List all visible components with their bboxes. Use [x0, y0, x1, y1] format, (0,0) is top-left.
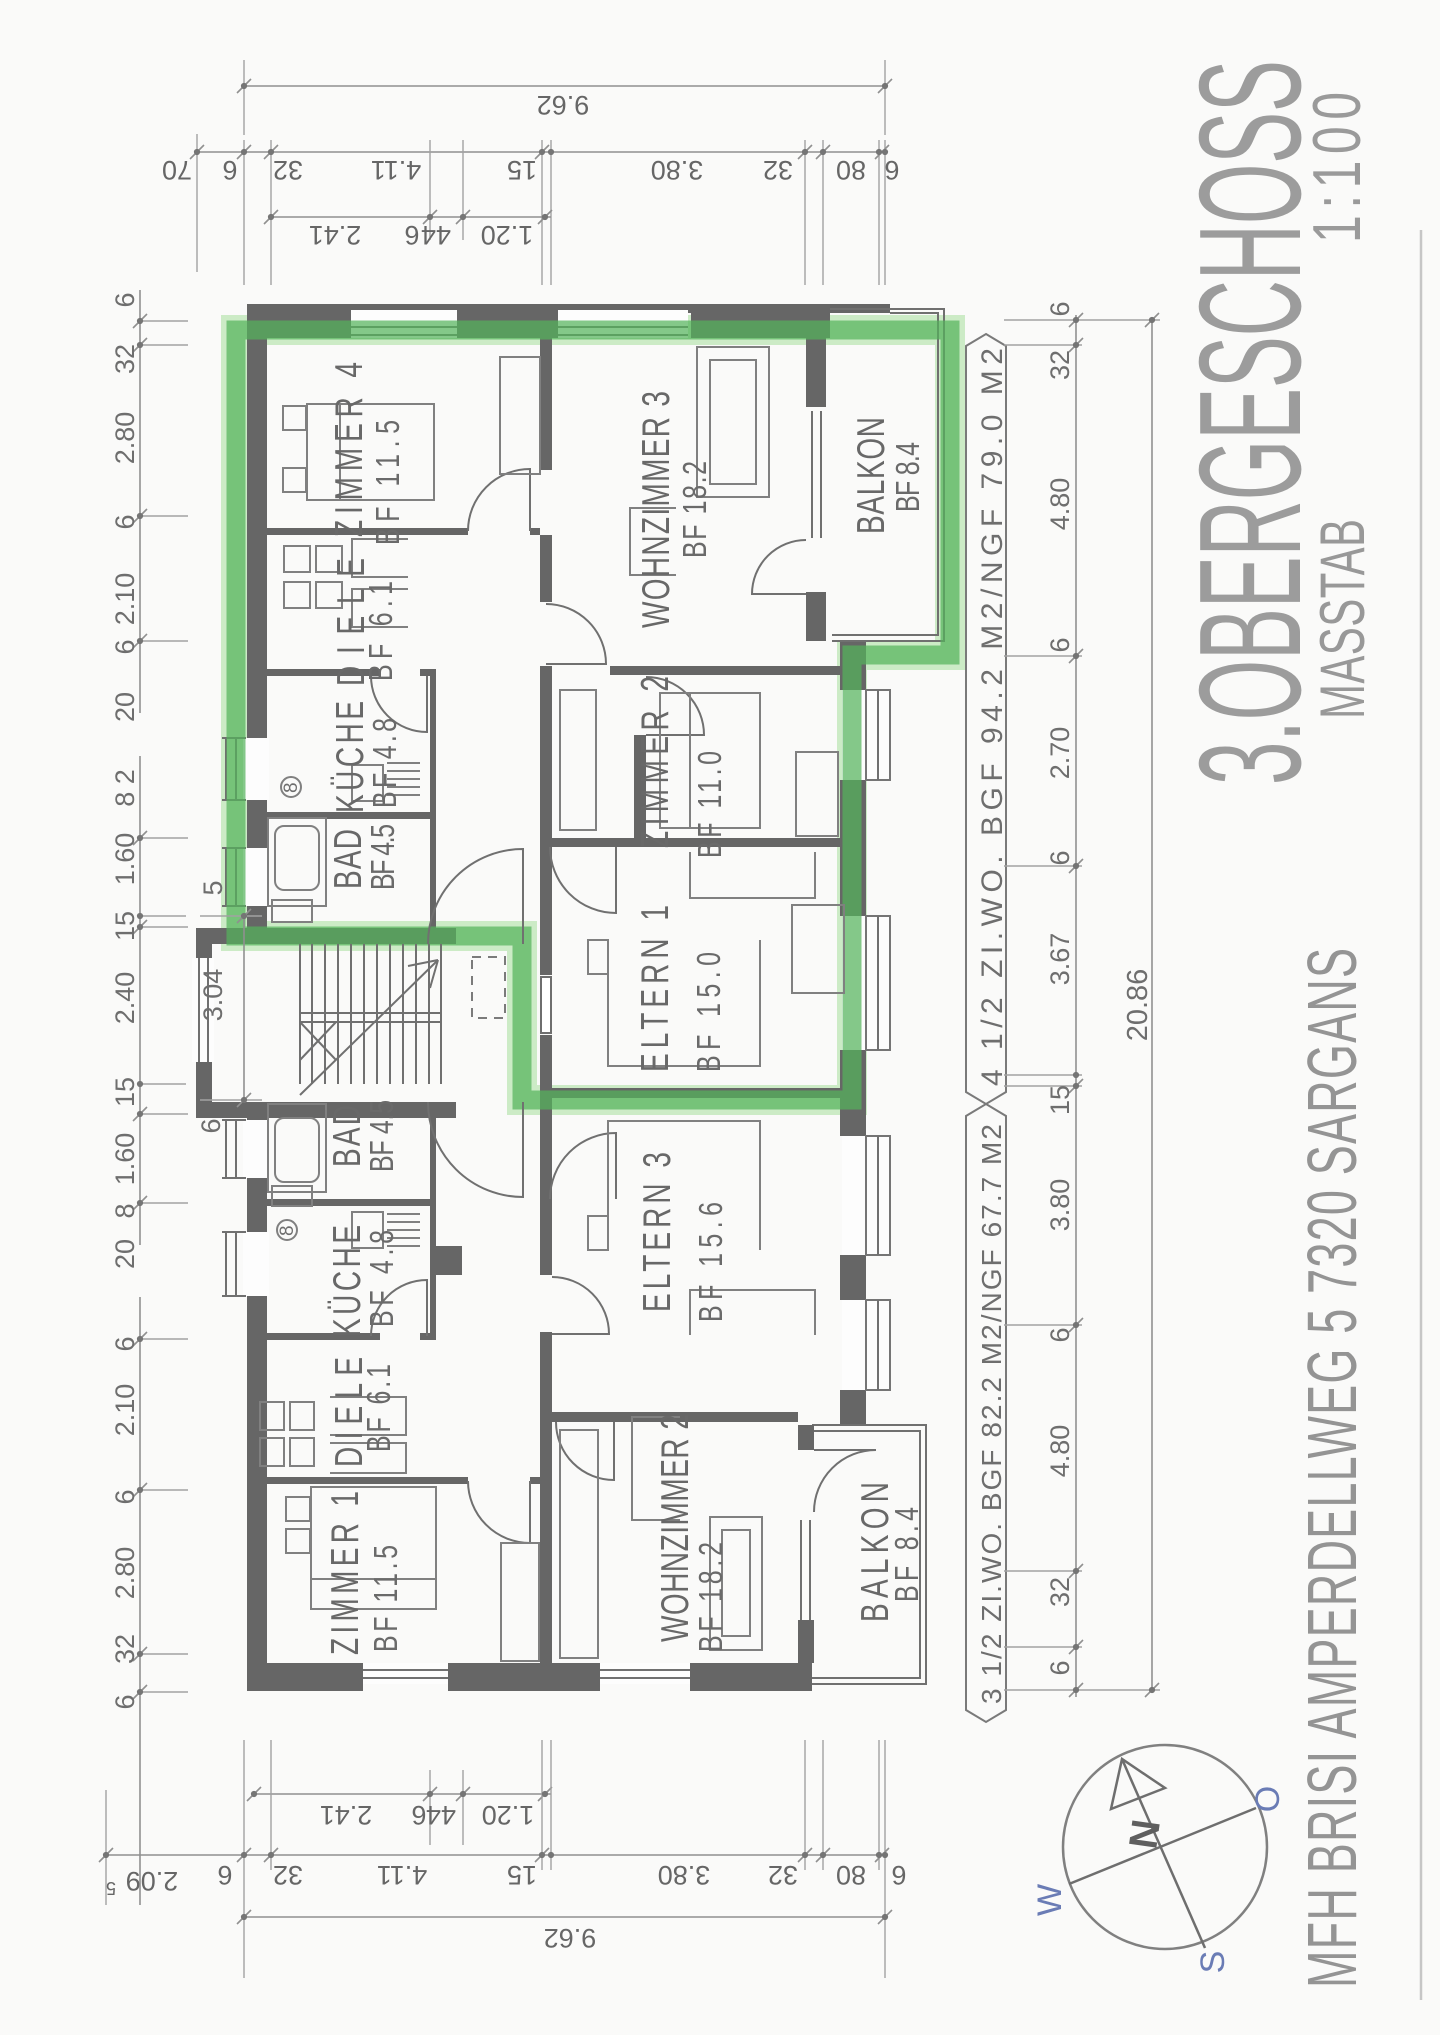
- svg-text:6: 6: [110, 639, 140, 654]
- svg-text:ZIMMER 1: ZIMMER 1: [323, 1491, 367, 1655]
- svg-text:4.11: 4.11: [371, 155, 422, 185]
- svg-text:70: 70: [162, 155, 192, 185]
- svg-text:2.80: 2.80: [110, 412, 140, 465]
- svg-text:2.09: 2.09: [126, 1866, 179, 1896]
- svg-text:44: 44: [426, 1800, 456, 1830]
- svg-text:6: 6: [1045, 1660, 1075, 1675]
- svg-text:6: 6: [1045, 301, 1075, 316]
- svg-text:5: 5: [106, 1878, 116, 1898]
- svg-text:4 1/2 ZI.WO. BGF 94.2 M2/NGF 7: 4 1/2 ZI.WO. BGF 94.2 M2/NGF 79.0 M2: [976, 348, 1009, 1086]
- svg-text:BF 4.5: BF 4.5: [363, 1100, 401, 1172]
- svg-text:6: 6: [217, 1860, 232, 1890]
- svg-text:3.80: 3.80: [651, 155, 704, 185]
- svg-text:80: 80: [836, 155, 866, 185]
- svg-text:15: 15: [110, 1077, 140, 1107]
- svg-text:3 1/2 ZI.WO. BGF 82.2 M2/NGF 6: 3 1/2 ZI.WO. BGF 82.2 M2/NGF 67.7 M2: [976, 1124, 1007, 1704]
- svg-text:BF 6.1: BF 6.1: [360, 1364, 398, 1452]
- svg-text:6: 6: [196, 1118, 226, 1133]
- svg-text:44: 44: [421, 220, 451, 250]
- svg-text:32: 32: [763, 155, 793, 185]
- svg-text:6: 6: [110, 292, 140, 307]
- svg-text:4.80: 4.80: [1045, 1425, 1075, 1478]
- svg-text:6: 6: [222, 155, 237, 185]
- svg-text:8: 8: [277, 1225, 298, 1236]
- svg-text:32: 32: [110, 1634, 140, 1664]
- svg-text:WOHNZIMMER 2: WOHNZIMMER 2: [653, 1414, 697, 1642]
- svg-text:6: 6: [1045, 850, 1075, 865]
- svg-text:4.11: 4.11: [377, 1860, 428, 1890]
- svg-text:ELTERN 1: ELTERN 1: [633, 905, 677, 1072]
- svg-text:BF 8.4: BF 8.4: [889, 442, 927, 512]
- svg-text:32: 32: [1045, 350, 1075, 380]
- svg-text:BF 4.5: BF 4.5: [364, 824, 402, 890]
- svg-text:ZIMMER 4: ZIMMER 4: [327, 362, 371, 537]
- svg-text:9.62: 9.62: [544, 1923, 597, 1953]
- svg-text:2.70: 2.70: [1045, 727, 1075, 780]
- svg-text:BALKON: BALKON: [849, 417, 893, 534]
- svg-text:ZIMMER 2: ZIMMER 2: [633, 676, 677, 848]
- svg-text:32: 32: [273, 1860, 303, 1890]
- svg-text:W: W: [1031, 1884, 1069, 1916]
- svg-text:15: 15: [1045, 1085, 1075, 1115]
- svg-text:6: 6: [411, 1800, 426, 1830]
- svg-text:6: 6: [1045, 1327, 1075, 1342]
- svg-text:4.80: 4.80: [1045, 478, 1075, 531]
- svg-text:MASSTAB: MASSTAB: [1309, 519, 1378, 719]
- svg-text:MFH BRISI AMPERDELLWEG 5 732: MFH BRISI AMPERDELLWEG 5 7320 SARGANS: [1294, 948, 1371, 1988]
- svg-text:2.10: 2.10: [110, 1384, 140, 1437]
- svg-text:8: 8: [110, 1203, 140, 1218]
- svg-text:N: N: [1121, 1817, 1169, 1852]
- svg-text:20.86: 20.86: [1122, 969, 1154, 1042]
- svg-text:8: 8: [281, 782, 302, 793]
- svg-text:1:100: 1:100: [1299, 92, 1375, 243]
- svg-text:ELTERN 3: ELTERN 3: [635, 1152, 679, 1312]
- svg-text:32: 32: [1045, 1577, 1075, 1607]
- svg-text:6: 6: [110, 1694, 140, 1709]
- svg-text:WOHNZIMMER 3: WOHNZIMMER 3: [634, 391, 678, 628]
- svg-text:6: 6: [891, 1860, 906, 1890]
- svg-text:15: 15: [507, 1860, 537, 1890]
- svg-text:3.80: 3.80: [1045, 1179, 1075, 1232]
- svg-text:20: 20: [110, 692, 140, 722]
- svg-text:6: 6: [1045, 637, 1075, 652]
- svg-text:32: 32: [768, 1860, 798, 1890]
- svg-text:20: 20: [110, 1239, 140, 1269]
- svg-text:2.40: 2.40: [110, 972, 140, 1025]
- svg-text:8 2: 8 2: [110, 769, 140, 807]
- svg-text:2.41: 2.41: [309, 220, 362, 250]
- svg-text:15: 15: [507, 155, 537, 185]
- svg-text:3.04: 3.04: [198, 969, 228, 1022]
- svg-text:3.80: 3.80: [658, 1860, 711, 1890]
- svg-text:BF 4.8: BF 4.8: [366, 718, 404, 808]
- svg-text:O: O: [1249, 1786, 1287, 1812]
- svg-text:15: 15: [110, 911, 140, 941]
- svg-text:1.60: 1.60: [110, 1133, 140, 1186]
- svg-text:BF 18.2: BF 18.2: [676, 461, 714, 558]
- svg-text:6: 6: [110, 1336, 140, 1351]
- svg-text:1.60: 1.60: [110, 833, 140, 886]
- svg-text:32: 32: [273, 155, 303, 185]
- svg-text:6: 6: [110, 514, 140, 529]
- svg-text:3.67: 3.67: [1045, 933, 1075, 986]
- svg-text:S: S: [1194, 1951, 1232, 1974]
- svg-text:2.80: 2.80: [110, 1547, 140, 1600]
- svg-text:1.20: 1.20: [482, 1800, 535, 1830]
- svg-text:80: 80: [836, 1860, 866, 1890]
- svg-text:6: 6: [884, 155, 899, 185]
- svg-text:32: 32: [110, 344, 140, 374]
- svg-text:2.10: 2.10: [110, 573, 140, 626]
- svg-text:2.41: 2.41: [320, 1800, 373, 1830]
- svg-text:6: 6: [404, 220, 419, 250]
- svg-text:9.62: 9.62: [537, 90, 590, 120]
- svg-text:6: 6: [110, 1489, 140, 1504]
- svg-text:1.20: 1.20: [481, 220, 534, 250]
- svg-text:5: 5: [198, 880, 228, 895]
